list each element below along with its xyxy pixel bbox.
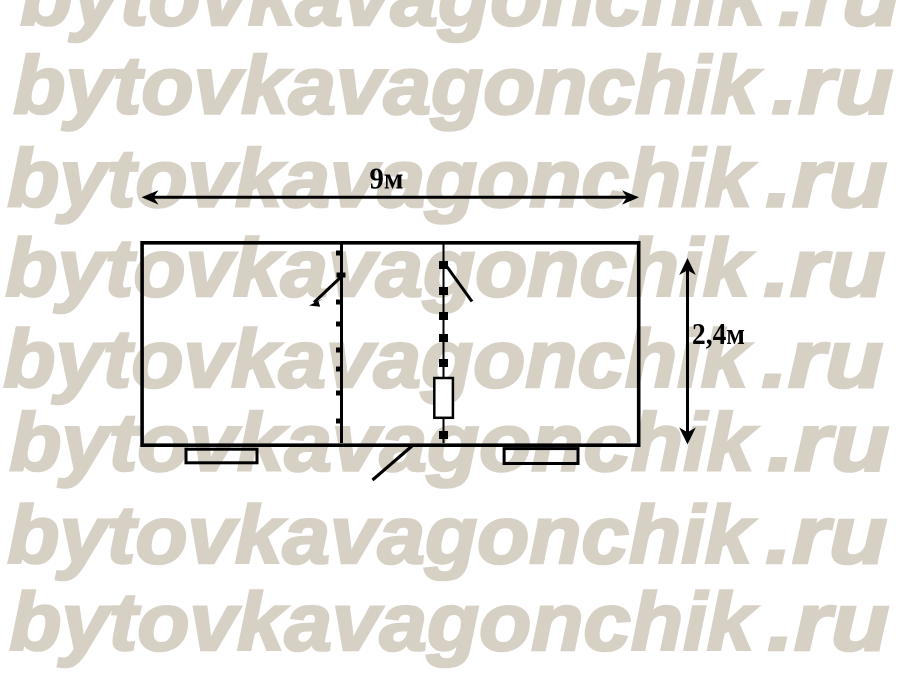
svg-text:.ru: .ru [771, 41, 893, 132]
svg-text:9м: 9м [370, 161, 404, 196]
svg-text:.ru: .ru [765, 490, 887, 581]
svg-text:.ru: .ru [767, 577, 889, 668]
svg-text:.ru: .ru [778, 0, 900, 43]
svg-text:2,4м: 2,4м [692, 316, 745, 351]
svg-text:.ru: .ru [761, 314, 883, 405]
svg-text:bytovkavagonchik: bytovkavagonchik [7, 490, 757, 581]
svg-text:.ru: .ru [763, 223, 885, 314]
svg-text:.ru: .ru [767, 398, 889, 489]
svg-text:bytovkavagonchik: bytovkavagonchik [5, 223, 755, 314]
svg-text:bytovkavagonchik: bytovkavagonchik [9, 577, 759, 668]
svg-text:bytovkavagonchik: bytovkavagonchik [20, 0, 770, 43]
svg-text:bytovkavagonchik: bytovkavagonchik [9, 398, 759, 489]
svg-text:.ru: .ru [765, 134, 887, 225]
svg-text:bytovkavagonchik: bytovkavagonchik [13, 41, 763, 132]
